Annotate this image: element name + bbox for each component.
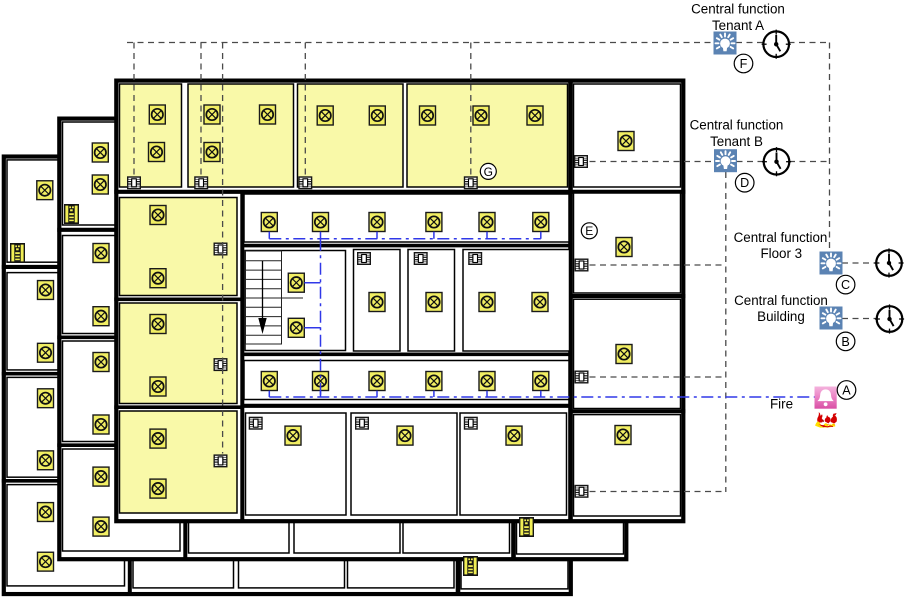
svg-text:B: B [841,335,849,349]
svg-text:D: D [740,176,749,190]
svg-text:Central function: Central function [734,230,828,245]
svg-text:Central function: Central function [734,293,828,308]
svg-text:Fire: Fire [770,397,793,412]
svg-text:Floor 3: Floor 3 [760,246,802,261]
svg-text:Tenant A: Tenant A [712,18,764,33]
svg-text:E: E [585,224,593,238]
svg-text:Central function: Central function [691,2,785,17]
svg-text:A: A [842,384,851,398]
svg-text:C: C [841,278,850,292]
svg-text:Central function: Central function [690,118,784,133]
svg-text:F: F [740,57,748,71]
svg-text:G: G [484,165,493,179]
svg-text:Tenant B: Tenant B [710,134,763,149]
svg-text:Building: Building [757,309,805,324]
